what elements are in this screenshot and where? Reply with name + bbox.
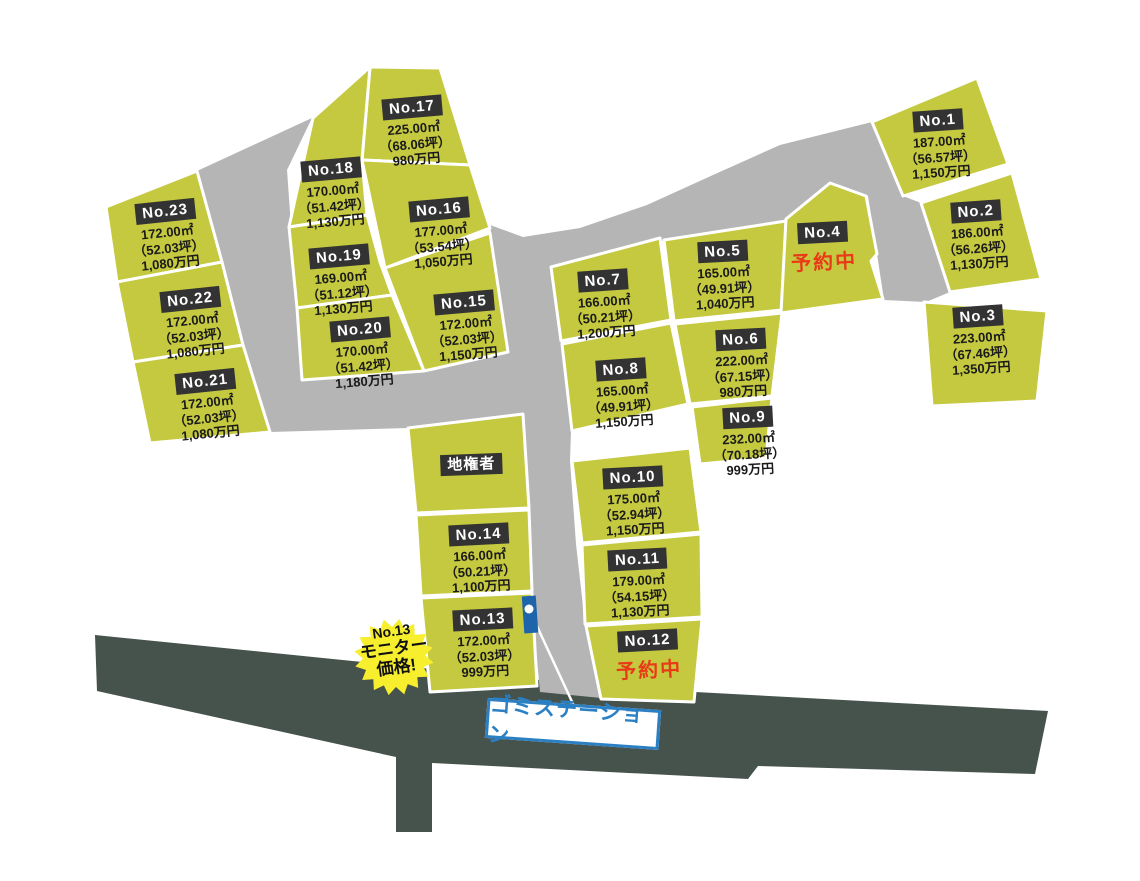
reserved-status: 予約中 (791, 250, 858, 275)
plot-label-no13: No.13 172.00㎡ （52.03坪） 999万円 (446, 607, 521, 681)
plot-number-badge: No.14 (448, 522, 509, 546)
plot-label-no7: No.7 166.00㎡ （50.21坪） 1,200万円 (566, 268, 642, 343)
plot-label-no21: No.21 172.00㎡ （52.03坪） 1,080万円 (168, 367, 247, 445)
plot-label-no2: No.2 186.00㎡ （56.26坪） 1,130万円 (939, 199, 1015, 274)
plot-label-no5: No.5 165.00㎡ （49.91坪） 1,040万円 (686, 239, 761, 313)
plot-number-badge: No.7 (577, 268, 629, 292)
plot-label-no4: No.4 予約中 (789, 220, 858, 275)
reserved-status: 予約中 (616, 658, 683, 683)
plot-label-no18: No.18 170.00㎡ （51.42坪） 1,130万円 (294, 156, 371, 232)
plot-label-no6: No.6 222.00㎡ （67.15坪） 980万円 (704, 327, 779, 401)
plot-number-badge: No.11 (608, 547, 668, 571)
plot-label-no3: No.3 223.00㎡ （67.46坪） 1,350万円 (941, 304, 1017, 379)
garbage-marker-dot (525, 605, 534, 614)
plot-number-badge: No.2 (950, 199, 1002, 223)
plot-label-no10: No.10 175.00㎡ （52.94坪） 1,150万円 (596, 465, 671, 539)
garbage-marker-icon (522, 596, 539, 634)
garbage-station-label: ゴミステーション (485, 698, 661, 750)
plot-number-badge: No.12 (617, 628, 678, 652)
plot-number-badge: No.13 (452, 607, 513, 631)
plot-label-landowner: 地権者 (440, 453, 503, 476)
plot-label-no22: No.22 172.00㎡ （52.03坪） 1,080万円 (153, 285, 232, 363)
plot-number-badge: No.18 (300, 156, 361, 182)
plot-number-badge: No.15 (433, 289, 494, 315)
plot-label-no23: No.23 172.00㎡ （52.03坪） 1,080万円 (128, 197, 207, 275)
plot-number-badge: No.9 (722, 406, 774, 430)
plot-label-no9: No.9 232.00㎡ （70.18坪） 999万円 (711, 405, 786, 479)
plot-number-badge: No.20 (329, 316, 390, 342)
plot-number-badge: No.17 (381, 94, 442, 120)
plot-number-badge: No.5 (697, 240, 749, 264)
plot-number-badge: No.3 (952, 304, 1004, 328)
plot-number-badge: No.4 (797, 221, 849, 245)
garbage-station-text: ゴミステーション (487, 688, 659, 760)
plot-label-no8: No.8 165.00㎡ （49.91坪） 1,150万円 (584, 357, 660, 432)
plot-label-no16: No.16 177.00㎡ （53.54坪） 1,050万円 (402, 196, 479, 272)
plot-label-no19: No.19 169.00㎡ （51.12坪） 1,130万円 (302, 243, 379, 319)
plot-label-no20: No.20 170.00㎡ （51.42坪） 1,180万円 (323, 316, 400, 392)
plot-number-badge: No.10 (602, 465, 663, 489)
plot-number-badge: No.19 (308, 243, 369, 269)
plot-label-no1: No.1 187.00㎡ （56.57坪） 1,150万円 (901, 108, 977, 183)
plot-label-no12: No.12 予約中 (614, 628, 683, 683)
plot-number-badge: No.6 (715, 328, 767, 352)
plot-label-no17: No.17 225.00㎡ （68.06坪） 980万円 (375, 94, 452, 170)
plot-number-badge: No.16 (408, 196, 469, 222)
plot-label-no11: No.11 179.00㎡ （54.15坪） 1,130万円 (601, 547, 676, 621)
lot-layout-map: No.1 187.00㎡ （56.57坪） 1,150万円 No.2 186.0… (0, 0, 1140, 881)
plot-number-badge: No.8 (595, 357, 647, 381)
plot-label-no14: No.14 166.00㎡ （50.21坪） 1,100万円 (442, 522, 517, 596)
plot-number-badge: 地権者 (440, 453, 503, 476)
plot-label-no15: No.15 172.00㎡ （52.03坪） 1,150万円 (427, 289, 504, 365)
plot-number-badge: No.1 (912, 108, 964, 132)
monitor-price-badge: No.13 モニター 価格! (357, 620, 432, 682)
